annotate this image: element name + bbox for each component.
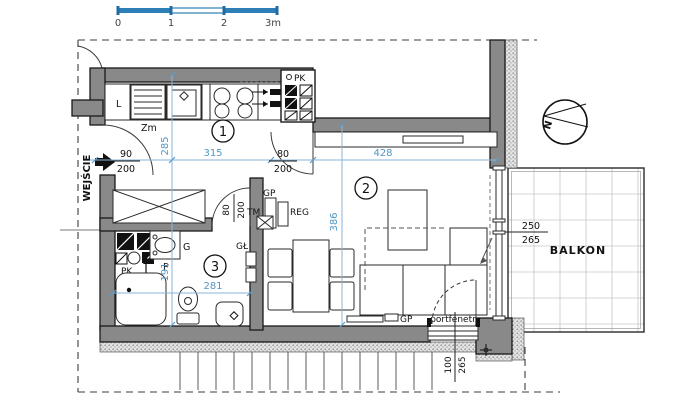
basin-label: G [183, 242, 190, 253]
balcony-door-dim-den: 265 [458, 356, 468, 373]
washbasin: G [150, 231, 190, 259]
dim-entrance-num: 90 [120, 149, 132, 160]
scale-bar: 0 1 2 3m [115, 6, 281, 29]
room-1-number: 1 [219, 125, 227, 140]
room-2-number: 2 [362, 182, 370, 197]
side-table [388, 190, 427, 250]
tm-label: TM [246, 208, 260, 218]
dim-pass-num: 80 [277, 149, 289, 160]
balcony: BALKON 250 265 [500, 168, 644, 332]
fridge-label: L [116, 99, 122, 110]
scale-tick [223, 6, 226, 15]
bathroom-door: 80 200 [212, 188, 250, 226]
room-2-badge: 2 [355, 177, 377, 199]
dim-bath-width: 281 [203, 281, 222, 292]
stairs-hatch [180, 352, 432, 390]
dishwasher-unit [131, 85, 165, 119]
reg-label: REG [290, 208, 309, 218]
floor-plan-svg: 0 1 2 3m BALKON 250 265 [0, 0, 689, 413]
compass-icon: N [542, 100, 588, 144]
balcony-label: BALKON [550, 244, 607, 257]
kitchen-shaft: PK [281, 70, 315, 122]
entrance-arrow-icon [95, 153, 115, 171]
small-basin [216, 302, 243, 326]
kitchen-shaft-label: PK [294, 74, 306, 84]
dining-table [268, 240, 354, 312]
outside-door-arc [78, 46, 102, 68]
wall-south [100, 326, 430, 342]
dim-pass-den: 200 [274, 164, 292, 175]
floor-heater-gp: GP [347, 314, 413, 325]
scale-bar-segment [224, 8, 278, 13]
scale-tick [170, 6, 173, 15]
wall-living-north [313, 118, 499, 132]
wardrobe-hall [113, 190, 205, 223]
dim-entrance-door: 90 200 [112, 149, 140, 175]
scale-label-2: 2 [221, 18, 227, 29]
drain-icon [127, 288, 131, 292]
room-1-badge: 1 [212, 120, 234, 142]
gp-bottom-label: GP [400, 315, 413, 325]
dim-hall-depth: 285 [160, 136, 171, 155]
balcony-door-dim-num: 100 [444, 356, 454, 373]
balcony-dim-num: 250 [522, 221, 540, 232]
gl-label: GŁ [236, 242, 249, 252]
jamb [476, 318, 480, 327]
scale-tick [276, 6, 279, 15]
wall-west-pier [72, 100, 103, 116]
dim-bath-depth: 191 [160, 262, 171, 281]
room-3-badge: 3 [204, 255, 226, 277]
dim-hall-width: 315 [203, 148, 222, 159]
balcony-dim-den: 265 [522, 235, 540, 246]
shower-tray [116, 273, 166, 325]
dim-entrance-den: 200 [117, 164, 135, 175]
floor-plan-page: 0 1 2 3m BALKON 250 265 [0, 0, 689, 413]
chair [268, 282, 292, 310]
wall-southeast-corner [476, 318, 512, 354]
sink-label: Zm [141, 123, 157, 134]
scale-label-0: 0 [115, 18, 121, 29]
kitchen-counter: L Zm [105, 82, 281, 134]
portfenetr-label: portfenetr [430, 315, 476, 325]
scale-bar-segment [171, 8, 224, 13]
bath-door-dim-den: 200 [237, 201, 247, 218]
duct-block [270, 101, 281, 107]
dim-living-width: 428 [373, 148, 392, 159]
dim-living-depth: 386 [329, 212, 340, 231]
wall-east-party [490, 40, 505, 168]
scale-label-1: 1 [168, 18, 174, 29]
duct-block [270, 89, 281, 95]
scale-label-3m: 3m [265, 18, 281, 29]
chair [268, 249, 292, 277]
washer-circle [128, 252, 140, 264]
scale-bar-segment [118, 8, 171, 13]
bath-door-dim-num: 80 [222, 204, 232, 216]
entrance-label: WEJŚCIE [80, 155, 93, 202]
room-3-number: 3 [211, 260, 219, 275]
scale-tick [117, 6, 120, 15]
